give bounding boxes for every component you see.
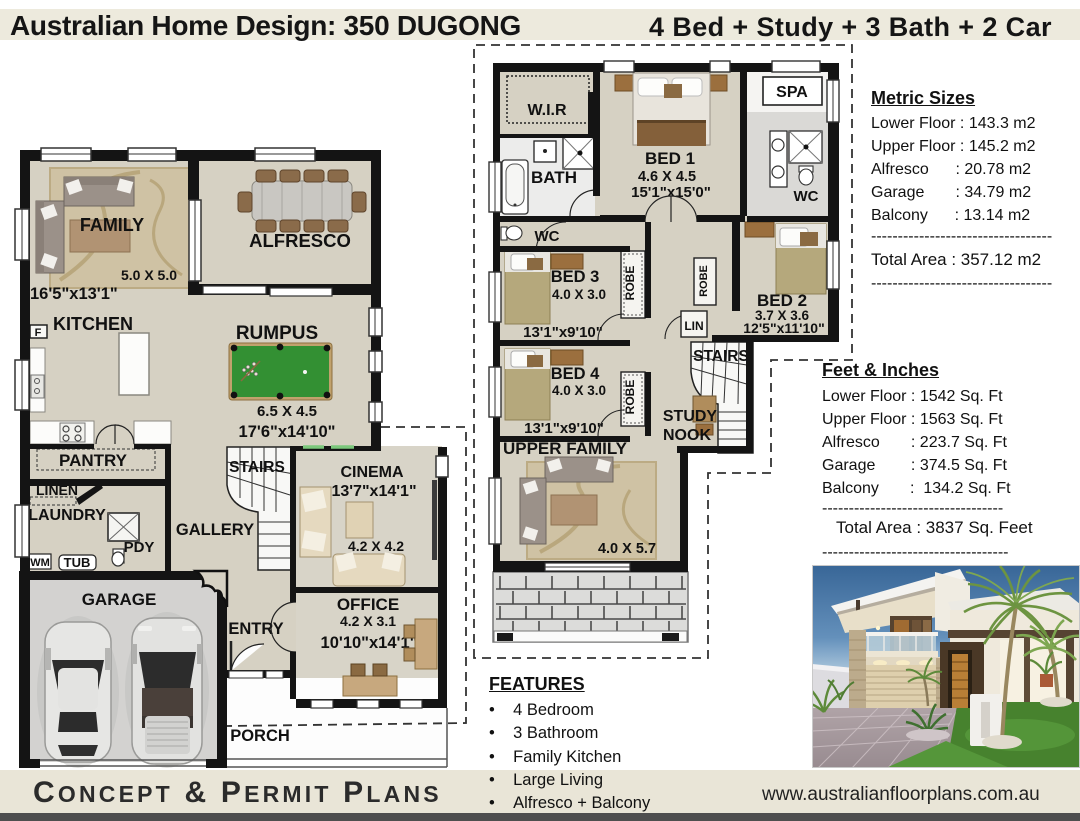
- svg-text:4.2 X 3.1: 4.2 X 3.1: [340, 613, 396, 629]
- svg-text:12'5"x11'10": 12'5"x11'10": [743, 320, 824, 336]
- svg-text:13'1"x9'10": 13'1"x9'10": [523, 324, 603, 341]
- svg-text:PANTRY: PANTRY: [59, 451, 128, 470]
- svg-text:OFFICE: OFFICE: [337, 595, 399, 614]
- svg-text:ENTRY: ENTRY: [228, 620, 283, 638]
- svg-text:BATH: BATH: [531, 168, 577, 187]
- svg-text:4.2 X 4.2: 4.2 X 4.2: [348, 538, 404, 554]
- svg-text:F: F: [35, 327, 42, 339]
- svg-text:PORCH: PORCH: [230, 727, 290, 745]
- svg-text:SPA: SPA: [776, 84, 808, 101]
- svg-text:4.6 X 4.5: 4.6 X 4.5: [638, 169, 696, 185]
- svg-text:BED 3: BED 3: [551, 268, 600, 286]
- svg-text:STUDY: STUDY: [663, 408, 718, 425]
- svg-text:STAIRS: STAIRS: [693, 348, 749, 365]
- svg-text:BED 1: BED 1: [645, 149, 695, 168]
- svg-text:16'5"x13'1": 16'5"x13'1": [30, 285, 118, 303]
- svg-text:13'7"x14'1": 13'7"x14'1": [331, 483, 416, 500]
- svg-text:BED 4: BED 4: [551, 365, 600, 383]
- svg-text:LIN: LIN: [684, 319, 703, 333]
- svg-text:PDY: PDY: [124, 539, 155, 556]
- svg-text:4.0 X 3.0: 4.0 X 3.0: [552, 383, 606, 398]
- svg-text:10'10"x14'1": 10'10"x14'1": [321, 634, 418, 652]
- svg-text:GARAGE: GARAGE: [82, 590, 157, 609]
- svg-text:GALLERY: GALLERY: [176, 521, 254, 539]
- svg-text:6.5 X 4.5: 6.5 X 4.5: [257, 403, 317, 420]
- svg-text:CINEMA: CINEMA: [340, 464, 404, 481]
- svg-text:13'1"x9'10": 13'1"x9'10": [524, 420, 604, 437]
- svg-text:ROBE: ROBE: [623, 380, 637, 415]
- svg-text:KITCHEN: KITCHEN: [53, 314, 133, 334]
- svg-text:WM: WM: [30, 557, 50, 569]
- svg-text:17'6"x14'10": 17'6"x14'10": [239, 423, 336, 441]
- svg-text:ROBE: ROBE: [623, 266, 637, 301]
- svg-text:5.0 X 5.0: 5.0 X 5.0: [121, 267, 177, 283]
- svg-text:WC: WC: [535, 228, 560, 245]
- svg-text:ALFRESCO: ALFRESCO: [249, 230, 351, 251]
- svg-text:STAIRS: STAIRS: [229, 459, 285, 476]
- svg-text:NOOK: NOOK: [663, 427, 711, 444]
- svg-text:FAMILY: FAMILY: [80, 215, 144, 235]
- svg-text:WC: WC: [794, 188, 819, 205]
- svg-text:4.0 X 3.0: 4.0 X 3.0: [552, 287, 606, 302]
- svg-text:ROBE: ROBE: [698, 265, 710, 297]
- svg-text:4.0 X 5.7: 4.0 X 5.7: [598, 541, 656, 557]
- svg-text:TUB: TUB: [64, 555, 91, 570]
- svg-text:W.I.R: W.I.R: [527, 102, 567, 119]
- svg-text:LAUNDRY: LAUNDRY: [28, 507, 106, 524]
- svg-text:RUMPUS: RUMPUS: [236, 323, 318, 344]
